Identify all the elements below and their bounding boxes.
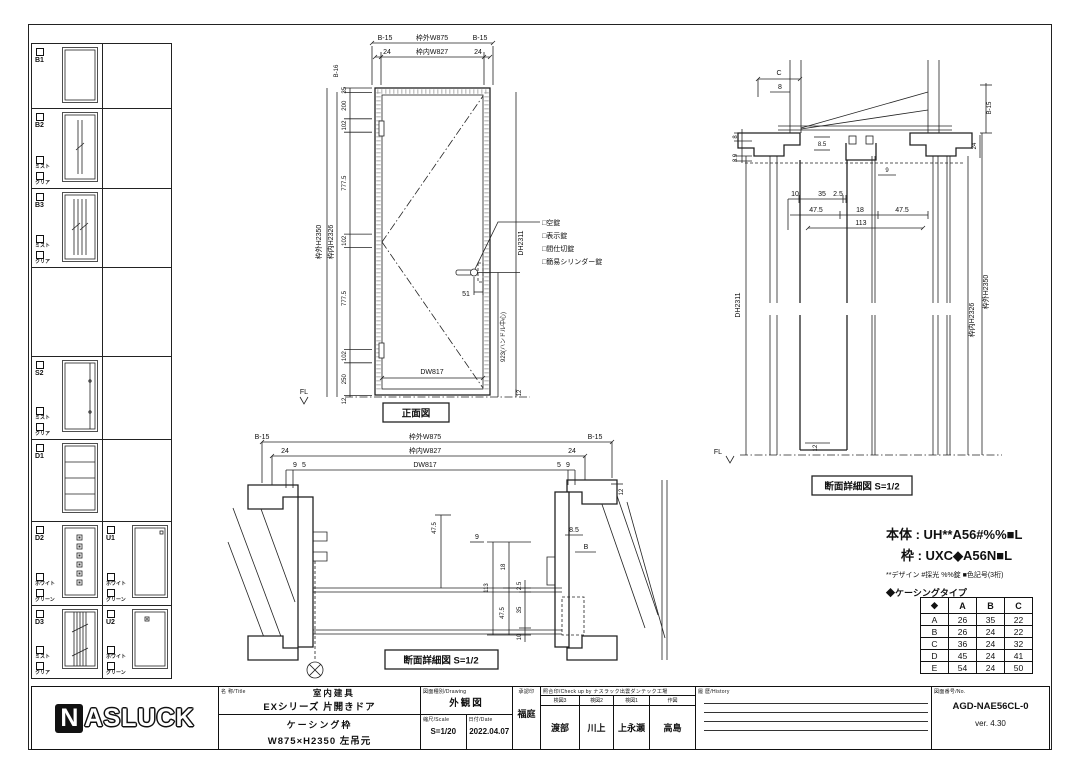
checker-name: 上永瀬	[614, 706, 649, 749]
field-label: 日付/Date	[467, 715, 513, 723]
checkbox-icon	[36, 193, 44, 201]
check-role: 作図	[650, 696, 695, 706]
checkbox-icon	[107, 610, 115, 618]
checker-name: 高島	[650, 706, 695, 749]
title-block: NASLUCK 名 称/Title 室内建具 EXシリーズ 片開きドア ケーシン…	[31, 686, 1050, 750]
cell: 26	[949, 614, 977, 626]
checker-name: 川上	[580, 706, 613, 749]
dim-label: 47.5	[895, 207, 909, 214]
dim-label: DH2311	[735, 292, 742, 317]
panel-row-b2: B2 ミスト クリア	[32, 109, 171, 189]
checkbox-icon	[36, 444, 44, 452]
dim-label: 923(ハンドル中心)	[499, 312, 507, 362]
panel-cell-u1: U1 ホワイト グリーン	[103, 522, 171, 606]
col-header: ◆	[921, 598, 949, 614]
dim-label: 枠外W875	[416, 33, 448, 42]
dim-label: 枠外W875	[409, 432, 441, 441]
check-col: 検図3 渡部	[541, 696, 580, 749]
dim-label: 35	[342, 86, 348, 93]
frame-model-code: 枠 : UXC◆A56N■L	[886, 545, 1056, 564]
dim-label: B-15	[378, 35, 393, 42]
lock-option: □空錠	[542, 218, 560, 227]
history-cell: 履 歴/History	[696, 687, 932, 749]
panel-preview-s2	[62, 360, 98, 432]
panel-row-b3: B3 ミスト クリア	[32, 189, 171, 269]
panel-preview-d1	[62, 443, 98, 513]
dim-label: 2.5	[833, 191, 843, 198]
cell: 24	[977, 638, 1005, 650]
dim-label: 8.5	[818, 142, 827, 148]
panel-cell-u2: U2 ホワイト グリーン	[103, 606, 171, 678]
drawing-number-cell: 図面番号/No. AGD-NAE56CL-0 ver. 4.30	[932, 687, 1049, 749]
product-series: EXシリーズ 片開きドア	[219, 699, 420, 713]
glass-option: ミスト	[35, 243, 50, 249]
checkbox-icon	[107, 646, 115, 654]
dim-label: 24	[568, 448, 576, 455]
dim-label: 113	[855, 220, 866, 227]
checkbox-icon	[36, 423, 44, 431]
panel-row-s2: S2 ミスト クリア	[32, 357, 171, 440]
cell: 32	[1005, 638, 1033, 650]
panel-cell-d3: D3 ミスト クリア	[32, 606, 103, 678]
dim-label: 250	[342, 374, 348, 385]
dim-label: 枠内W827	[416, 47, 448, 56]
dim-label: B-16	[334, 64, 340, 77]
cell: A	[921, 614, 949, 626]
dim-label: B-15	[255, 434, 270, 441]
cell: 22	[1005, 614, 1033, 626]
color-option: ホワイト	[35, 581, 55, 587]
dim-label: 24	[972, 142, 978, 149]
check-col: 作図 高島	[650, 696, 695, 749]
panel-type-matrix: B1 B2 ミスト クリア B3 ミスト クリア	[31, 43, 172, 679]
panel-cell-d1: D1	[32, 440, 103, 521]
dim-label: 12	[342, 397, 348, 404]
glass-option: クリア	[35, 180, 50, 186]
panel-preview-d2	[62, 525, 98, 598]
history-line	[704, 703, 928, 704]
dim-label: 10	[517, 633, 523, 640]
color-option: ホワイト	[106, 654, 126, 660]
dim-label: 枠外H2350	[314, 225, 323, 260]
panel-code: B2	[35, 122, 44, 130]
plan-section-caption: 断面詳細図 S=1/2	[385, 650, 498, 669]
glass-option: ミスト	[35, 415, 50, 421]
company-logo-cell: NASLUCK	[32, 687, 219, 749]
cell: E	[921, 662, 949, 674]
dim-label: 枠外H2350	[981, 275, 990, 310]
front-dimension-lines	[327, 41, 540, 397]
dim-label: 18	[856, 207, 864, 214]
dim-label: DW817	[413, 462, 436, 469]
color-option: グリーン	[106, 597, 126, 603]
vert-section-caption: 断面詳細図 S=1/2	[812, 476, 912, 495]
check-stamps-cell: 照合印/Check up by ナスラック出雲ダンテック工場 検図3 渡部 検図…	[541, 687, 696, 749]
front-elevation-view: B-15 枠外W875 B-15 24 枠内W827 24 B-16 枠外H23…	[290, 25, 625, 425]
panel-cell-empty	[103, 189, 171, 268]
panel-code: U1	[106, 535, 115, 543]
logo-n-mark: N	[55, 704, 83, 733]
cell: 41	[1005, 650, 1033, 662]
cell: 54	[949, 662, 977, 674]
approval-stamp-cell: 承認印 福庭	[513, 687, 541, 749]
dim-label: 8.5	[569, 527, 579, 534]
checkbox-icon	[107, 662, 115, 670]
dim-label: 51	[462, 291, 470, 298]
checkbox-icon	[107, 526, 115, 534]
field-label: 図面種別/Drawing	[421, 687, 512, 695]
panel-row-b1: B1	[32, 44, 171, 109]
dim-label: 777.5	[342, 290, 348, 306]
cad-drawing-sheet: B1 B2 ミスト クリア B3 ミスト クリア	[0, 0, 1080, 764]
glass-option: クリア	[35, 431, 50, 437]
frame-type: ケーシング枠	[219, 718, 420, 731]
vertical-section-view: C 8 8 3.9 B-15 24 8.5 9 10 35 2.5 47.5 1…	[700, 55, 1010, 505]
color-option: ホワイト	[106, 581, 126, 587]
dim-label: B	[584, 544, 589, 551]
dim-label: 18	[501, 563, 507, 570]
dim-label: 3.9	[733, 153, 739, 162]
table-row: B262422	[921, 626, 1033, 638]
table-row: A263522	[921, 614, 1033, 626]
dim-label: 12	[813, 444, 819, 451]
dim-label: 200	[342, 100, 348, 111]
cell: 36	[949, 638, 977, 650]
checkbox-icon	[36, 407, 44, 415]
panel-row-d2-u1: D2 ホワイト グリーン U1 ホワイト グリーン	[32, 522, 171, 607]
code-legend-note: **デザイン #採光 %%錠 ■色記号(3桁)	[886, 570, 1056, 580]
body-model-code: 本体 : UH**A56#%%■L	[886, 524, 1056, 543]
panel-cell-b3: B3 ミスト クリア	[32, 189, 103, 268]
table-row: C362432	[921, 638, 1033, 650]
lock-option: □間仕切錠	[542, 244, 574, 253]
panel-cell-b1: B1	[32, 44, 103, 108]
history-line	[704, 712, 928, 713]
cell: C	[921, 638, 949, 650]
dim-label: 9	[293, 462, 297, 469]
dim-label: DH2311	[518, 230, 525, 255]
checkbox-icon	[36, 526, 44, 534]
panel-cell-d2: D2 ホワイト グリーン	[32, 522, 103, 606]
glass-option: クリア	[35, 670, 50, 676]
check-role: 検図3	[541, 696, 579, 706]
panel-code: B1	[35, 57, 44, 65]
nasluck-logo: NASLUCK	[55, 704, 194, 733]
dim-label: 枠内W827	[409, 446, 441, 455]
check-role: 検図2	[580, 696, 613, 706]
dim-label: 47.5	[500, 607, 506, 619]
dim-label: 24	[281, 448, 289, 455]
history-line	[704, 730, 928, 731]
checkbox-icon	[36, 610, 44, 618]
lock-option: □簡易シリンダー錠	[542, 257, 602, 266]
panel-cell-s2: S2 ミスト クリア	[32, 357, 103, 439]
check-col: 検図1 上永瀬	[614, 696, 650, 749]
panel-row-empty	[32, 268, 171, 357]
checkbox-icon	[36, 113, 44, 121]
field-label: 名 称/Title	[219, 687, 248, 699]
vert-structure	[726, 60, 1002, 463]
panel-cell-empty	[103, 109, 171, 188]
glass-option: クリア	[35, 259, 50, 265]
dim-label: 9	[475, 534, 479, 541]
floor-level-label: FL	[714, 449, 722, 456]
field-label: 照合印/Check up by ナスラック出雲ダンテック工場	[541, 687, 695, 695]
history-line	[704, 721, 928, 722]
panel-preview-d3	[62, 609, 98, 669]
panel-code: D2	[35, 535, 44, 543]
col-header: C	[1005, 598, 1033, 614]
col-header: B	[977, 598, 1005, 614]
table-row: D452441	[921, 650, 1033, 662]
cell: 24	[977, 662, 1005, 674]
dim-label: 35	[818, 191, 826, 198]
checkbox-icon	[36, 662, 44, 670]
approver-name: 福庭	[517, 707, 535, 720]
dim-label: DW817	[420, 369, 443, 376]
col-header: A	[949, 598, 977, 614]
panel-code: B3	[35, 202, 44, 210]
drawing-type: 外観図	[421, 695, 512, 709]
dim-label: 5	[557, 462, 561, 469]
checkbox-icon	[36, 156, 44, 164]
dim-label: 102	[342, 235, 348, 246]
product-category: 室内建具	[248, 687, 420, 699]
panel-code: S2	[35, 370, 44, 378]
size-and-hand: W875×H2350 左吊元	[219, 733, 420, 747]
dim-label: B-15	[987, 101, 993, 114]
logo-wordmark: ASLUCK	[84, 704, 194, 733]
drawing-title-cell: 名 称/Title 室内建具 EXシリーズ 片開きドア ケーシング枠 W875×…	[219, 687, 421, 749]
dim-label: B-15	[473, 35, 488, 42]
dim-label: 9	[885, 168, 889, 174]
panel-cell-empty	[103, 357, 171, 439]
checkbox-icon	[36, 235, 44, 243]
field-label: 履 歴/History	[696, 687, 931, 695]
cell: 24	[977, 626, 1005, 638]
panel-preview-u1	[132, 525, 168, 598]
dim-label: 35	[517, 606, 523, 613]
dim-label: 枠内H2326	[967, 303, 976, 338]
field-label: 図面番号/No.	[932, 687, 1049, 695]
checkbox-icon	[36, 646, 44, 654]
color-option: グリーン	[106, 670, 126, 676]
panel-cell-empty	[32, 268, 103, 356]
dim-label: 8	[778, 84, 782, 91]
table-header-row: ◆ A B C	[921, 598, 1033, 614]
dim-label: 12	[619, 488, 625, 495]
panel-code: D1	[35, 453, 44, 461]
panel-cell-b2: B2 ミスト クリア	[32, 109, 103, 188]
panel-preview-u2	[132, 609, 168, 669]
checker-name: 渡部	[541, 706, 579, 749]
checkbox-icon	[36, 48, 44, 56]
glass-option: ミスト	[35, 654, 50, 660]
cell: 45	[949, 650, 977, 662]
check-role: 検図1	[614, 696, 649, 706]
color-option: グリーン	[35, 597, 55, 603]
dim-label: 24	[383, 49, 391, 56]
dim-label: B-15	[588, 434, 603, 441]
dim-label: 10	[791, 191, 799, 198]
dim-label: 102	[342, 350, 348, 361]
glass-option: ミスト	[35, 164, 50, 170]
panel-code: D3	[35, 619, 44, 627]
plan-jambs	[228, 480, 667, 678]
panel-preview-b3	[62, 192, 98, 262]
panel-cell-empty	[103, 268, 171, 356]
panel-row-d1: D1	[32, 440, 171, 522]
dim-label: 2.5	[517, 581, 523, 590]
dim-label: 47.5	[432, 522, 438, 534]
panel-cell-empty	[103, 44, 171, 108]
view-caption-label: 正面図	[402, 409, 431, 420]
date-value: 2022.04.07	[467, 727, 513, 736]
product-spec-block: 本体 : UH**A56#%%■L 枠 : UXC◆A56N■L **デザイン …	[886, 524, 1056, 599]
floor-level-label: FL	[300, 389, 308, 396]
panel-cell-empty	[103, 440, 171, 521]
field-label: 縮尺/Scale	[421, 715, 466, 723]
dim-label: 枠内H2326	[326, 225, 335, 260]
cell: B	[921, 626, 949, 638]
panel-code: U2	[106, 619, 115, 627]
dim-label: 24	[474, 49, 482, 56]
lock-option: □表示錠	[542, 231, 567, 240]
dim-label: 12	[517, 389, 523, 396]
cell: D	[921, 650, 949, 662]
cell: 22	[1005, 626, 1033, 638]
panel-preview-b1	[62, 47, 98, 103]
checkbox-icon	[36, 361, 44, 369]
dim-label: 47.5	[809, 207, 823, 214]
check-col: 検図2 川上	[580, 696, 614, 749]
cell: 24	[977, 650, 1005, 662]
dim-label: 777.5	[342, 175, 348, 191]
table-row: E542450	[921, 662, 1033, 674]
dim-label: 5	[302, 462, 306, 469]
version-label: ver. 4.30	[932, 719, 1049, 728]
casing-type-table: ◆ A B C A263522 B262422 C362432 D452441 …	[920, 597, 1033, 674]
drawing-type-cell: 図面種別/Drawing 外観図 縮尺/Scale S=1/20 日付/Date…	[421, 687, 513, 749]
cell: 50	[1005, 662, 1033, 674]
panel-row-d3-u2: D3 ミスト クリア U2 ホワイト グリーン	[32, 606, 171, 678]
scale-value: S=1/20	[421, 727, 466, 736]
checkbox-icon	[36, 172, 44, 180]
dim-label: C	[776, 70, 781, 77]
cell: 35	[977, 614, 1005, 626]
field-label: 承認印	[517, 687, 537, 695]
plan-section-view: B-15 枠外W875 B-15 24 枠内W827 24 9 5 DW817 …	[225, 430, 670, 685]
dim-label: 113	[484, 583, 490, 593]
dim-label: 102	[342, 120, 348, 131]
drawing-number: AGD-NAE56CL-0	[932, 701, 1049, 712]
panel-preview-b2	[62, 112, 98, 182]
view-caption-label: 断面詳細図 S=1/2	[824, 481, 899, 493]
view-caption-label: 断面詳細図 S=1/2	[403, 655, 478, 667]
front-view-caption: 正面図	[383, 403, 449, 422]
cell: 26	[949, 626, 977, 638]
dim-label: 9	[566, 462, 570, 469]
